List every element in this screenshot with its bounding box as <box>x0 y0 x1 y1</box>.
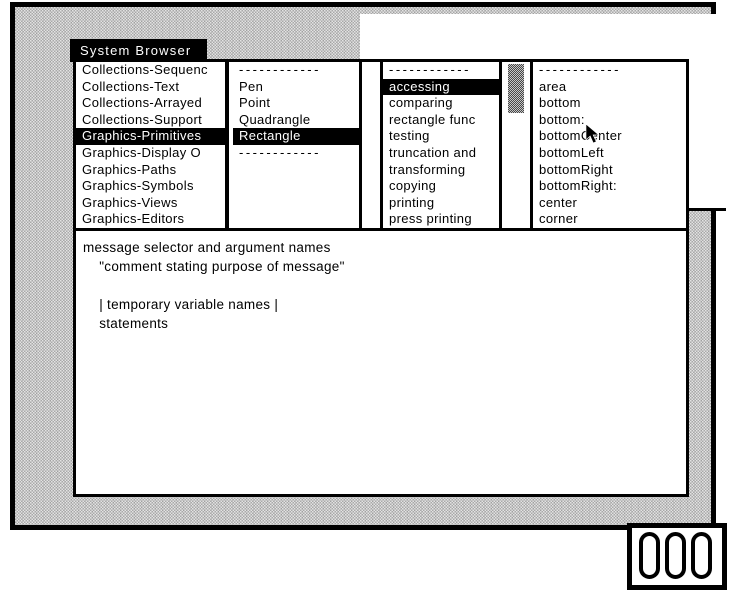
list-item[interactable]: Collections-Support <box>76 112 225 129</box>
code-line: statements <box>83 314 686 333</box>
list-item[interactable]: corner <box>533 211 686 228</box>
list-item[interactable]: center <box>533 195 686 212</box>
list-item[interactable]: bottomRight <box>533 162 686 179</box>
list-item[interactable]: bottom <box>533 95 686 112</box>
list-item[interactable]: bottomLeft <box>533 145 686 162</box>
list-item-selected[interactable]: Rectangle <box>233 128 359 145</box>
scrollbar-thumb[interactable] <box>508 64 524 113</box>
list-item[interactable]: Graphics-Views <box>76 195 225 212</box>
list-item[interactable]: Point <box>233 95 359 112</box>
code-line: | temporary variable names | <box>83 295 686 314</box>
page: System Browser Collections-Sequenc Colle… <box>0 0 729 599</box>
list-item[interactable]: bottom: <box>533 112 686 129</box>
corner-icon-box[interactable] <box>627 523 727 590</box>
list-item[interactable]: Pen <box>233 79 359 96</box>
list-item-selected[interactable]: accessing <box>383 79 499 96</box>
list-item[interactable]: press printing <box>383 211 499 228</box>
list-item[interactable]: bottomRight: <box>533 178 686 195</box>
list-item[interactable]: Collections-Arrayed <box>76 95 225 112</box>
list-item[interactable]: Graphics-Symbols <box>76 178 225 195</box>
code-line: message selector and argument names <box>83 238 686 257</box>
protocol-pane: ------------ accessing comparing rectang… <box>380 62 502 228</box>
list-separator: ------------ <box>233 145 359 162</box>
list-item[interactable]: comparing <box>383 95 499 112</box>
list-item[interactable]: Graphics-Display O <box>76 145 225 162</box>
list-item[interactable]: area <box>533 79 686 96</box>
list-item[interactable]: Collections-Sequenc <box>76 62 225 79</box>
list-item-selected[interactable]: Graphics-Primitives <box>76 128 225 145</box>
list-separator: ------------ <box>533 62 686 79</box>
list-separator: ------------ <box>383 62 499 79</box>
list-item[interactable]: copying <box>383 178 499 195</box>
list-item[interactable]: Collections-Text <box>76 79 225 96</box>
code-editor[interactable]: message selector and argument names "com… <box>76 228 686 494</box>
scrollbar-track[interactable] <box>502 62 530 228</box>
code-line <box>83 276 686 295</box>
list-item[interactable]: truncation and <box>383 145 499 162</box>
list-item[interactable]: Graphics-Editors <box>76 211 225 228</box>
list-item[interactable]: testing <box>383 128 499 145</box>
capsule-icon <box>639 532 660 579</box>
list-item[interactable]: printing <box>383 195 499 212</box>
category-pane: Collections-Sequenc Collections-Text Col… <box>76 62 229 228</box>
selector-pane: ------------ area bottom bottom: bottomC… <box>530 62 686 228</box>
list-item[interactable]: Graphics-Paths <box>76 162 225 179</box>
list-item[interactable]: Quadrangle <box>233 112 359 129</box>
code-line: "comment stating purpose of message" <box>83 257 686 276</box>
mouse-cursor-icon <box>585 124 601 144</box>
list-item[interactable]: transforming <box>383 162 499 179</box>
capsule-icon <box>691 532 712 579</box>
list-item[interactable]: bottomCenter <box>533 128 686 145</box>
list-separator: ------------ <box>233 62 359 79</box>
capsule-icon <box>665 532 686 579</box>
list-item[interactable]: rectangle func <box>383 112 499 129</box>
class-pane: ------------ Pen Point Quadrangle Rectan… <box>233 62 362 228</box>
